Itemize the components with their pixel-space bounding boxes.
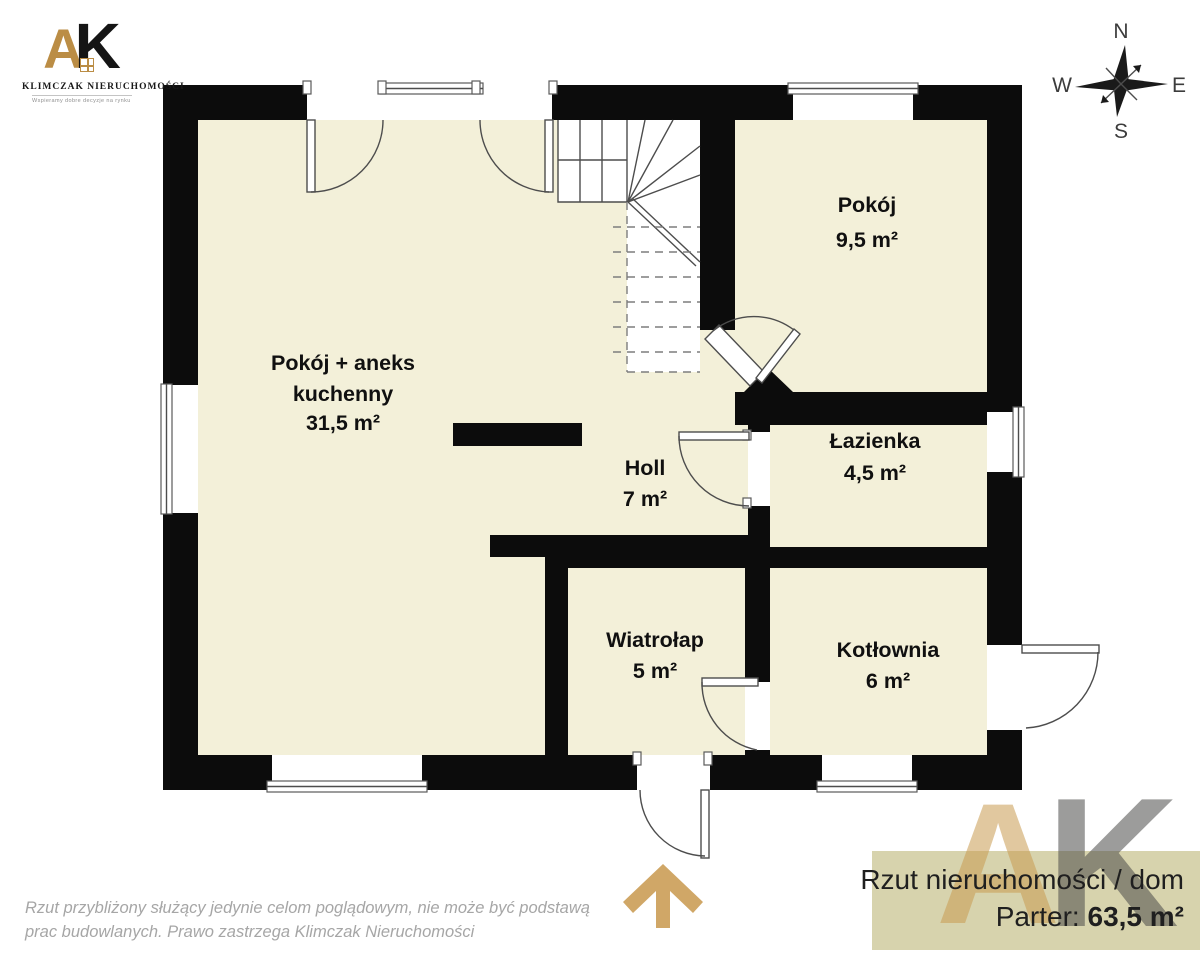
disclaimer-line1: Rzut przybliżony służący jedynie celom p…	[25, 896, 590, 920]
compass-west: W	[1052, 74, 1072, 97]
company-tagline: Wspieramy dobre decyzje na rynku nieruch…	[32, 95, 132, 104]
banner-floor-line: Parter: 63,5 m²	[860, 898, 1184, 935]
window-bottom-living	[267, 781, 427, 792]
disclaimer: Rzut przybliżony służący jedynie celom p…	[25, 896, 590, 944]
label-hall-name: Holl	[625, 456, 666, 480]
logo-mark: AK	[22, 12, 142, 80]
banner-floor-label: Parter:	[996, 901, 1080, 932]
compass-south: S	[1114, 120, 1128, 143]
company-logo: AK KLIMCZAK NIERUCHOMOŚCI Wspieramy dobr…	[22, 12, 142, 104]
disclaimer-line2: prac budowlanych. Prawo zastrzega Klimcz…	[25, 920, 590, 944]
label-vestibule-name: Wiatrołap	[606, 628, 704, 652]
window-left-living	[161, 384, 172, 514]
label-room-name: Pokój	[838, 193, 897, 217]
entrance-arrow-icon	[623, 864, 703, 928]
label-boiler-name: Kotłownia	[837, 638, 941, 662]
door-entrance	[640, 790, 709, 858]
door-boiler-exterior	[1022, 645, 1099, 728]
company-name: KLIMCZAK NIERUCHOMOŚCI	[22, 82, 142, 92]
page: { "header_logo": { "letter_a": "A", "let…	[0, 0, 1200, 950]
banner-title: Rzut nieruchomości / dom	[860, 861, 1184, 898]
window-right-bathroom	[1013, 407, 1024, 477]
label-living-line1: Pokój + aneks	[271, 351, 415, 375]
footer-banner-text: Rzut nieruchomości / dom Parter: 63,5 m²	[860, 861, 1184, 935]
floor-plan-svg: Pokój + aneks kuchenny 31,5 m² Pokój 9,5…	[0, 0, 1200, 950]
label-bathroom-area: 4,5 m²	[844, 461, 906, 485]
label-hall-area: 7 m²	[623, 487, 667, 511]
compass-icon: N S W E	[1052, 20, 1186, 143]
window-bottom-boiler	[817, 781, 917, 792]
label-living-line2: kuchenny	[293, 382, 393, 406]
house-window-icon	[80, 58, 94, 72]
banner-floor-area: 63,5 m²	[1088, 901, 1185, 932]
label-boiler-area: 6 m²	[866, 669, 910, 693]
label-room-area: 9,5 m²	[836, 228, 898, 252]
window-top-room	[788, 83, 918, 94]
label-living-area: 31,5 m²	[306, 411, 380, 435]
label-bathroom-name: Łazienka	[830, 429, 922, 453]
label-vestibule-area: 5 m²	[633, 659, 677, 683]
compass-east: E	[1172, 74, 1186, 97]
compass-north: N	[1113, 20, 1128, 43]
window-top-living	[380, 83, 483, 94]
